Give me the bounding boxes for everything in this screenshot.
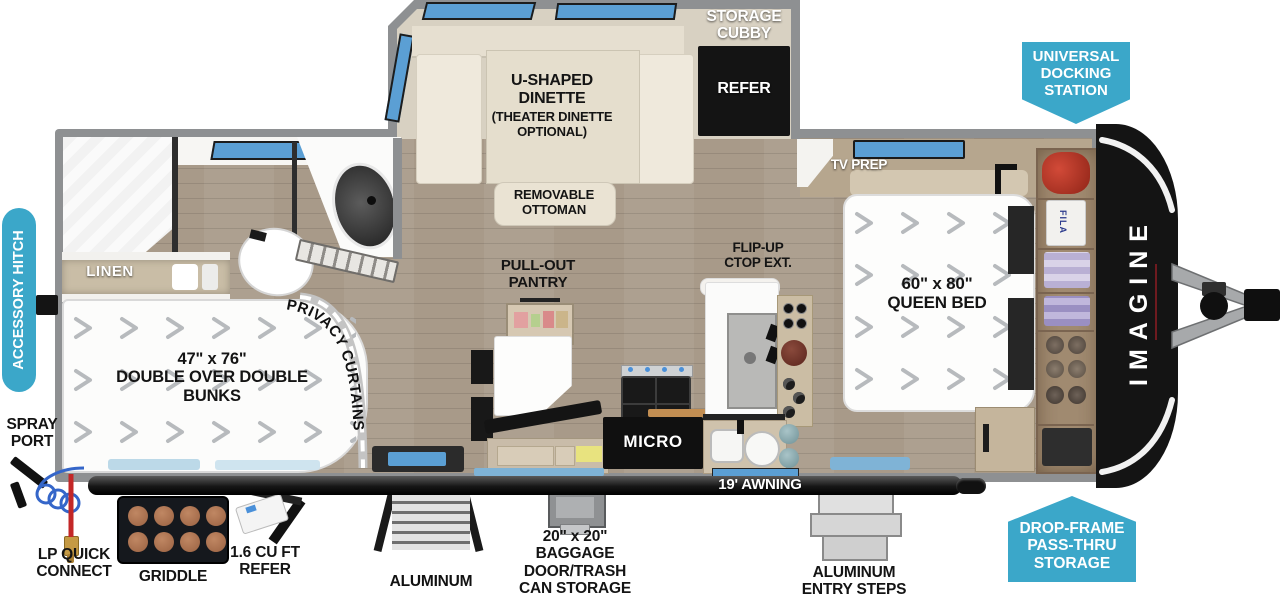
knob-icon	[783, 318, 794, 329]
knob-icon	[783, 303, 794, 314]
canister-icon	[779, 448, 799, 468]
label-micro: MICRO	[603, 432, 703, 451]
badge-accessory-hitch-text: ACCESSORY HITCH	[11, 230, 27, 369]
label-dinette-main: U-SHAPED DINETTE	[490, 72, 614, 108]
label-outside-refer: 1.6 CU FT REFER	[222, 544, 308, 579]
bowl-icon	[781, 340, 807, 366]
baggage-door-inner	[556, 497, 594, 518]
bathroom-wall	[393, 138, 402, 259]
label-queen-bed: 60" x 80" QUEEN BED	[863, 274, 1011, 312]
entry-step-icon	[822, 535, 888, 561]
label-step-entry: ALUMINUM STEP ABOVE 3 STEP ENTRY	[366, 556, 496, 610]
rv-floorplan-diagram: FILA IMAGINE	[0, 0, 1280, 610]
label-baggage-door: 20" x 20" BAGGAGE DOOR/TRASH CAN STORAGE	[518, 528, 632, 597]
pantry-item-icon	[531, 314, 540, 327]
awning-bar	[88, 476, 962, 495]
label-step-entry-line1: ALUMINUM	[366, 573, 496, 590]
cutting-board-icon	[648, 409, 706, 417]
shoes-red-icon	[1042, 152, 1090, 194]
label-awning: 19' AWNING	[710, 477, 810, 494]
towel-icon	[202, 264, 218, 290]
hitch-frame-bar-icon	[1172, 306, 1247, 348]
pantry-item-icon	[514, 312, 528, 328]
range-knob-icon	[679, 367, 684, 372]
patty-icon	[180, 532, 200, 552]
patty-icon	[206, 506, 226, 526]
folded-clothes-icon	[1044, 252, 1090, 288]
brand-imagine: IMAGINE	[1125, 151, 1151, 451]
spray-hose-coil-icon	[61, 494, 79, 512]
round-sink-icon	[744, 431, 780, 467]
wall-cabinet-icon	[471, 350, 493, 384]
shower	[63, 137, 173, 259]
range-knob-icon	[645, 367, 650, 372]
bottle-icon	[783, 378, 795, 390]
shoe-icon	[1068, 360, 1086, 378]
shoe-icon	[1046, 386, 1064, 404]
entry-mat-window	[388, 452, 446, 466]
wardrobe-shelf-line	[1038, 248, 1094, 250]
badge-drop-frame-storage: DROP-FRAME PASS-THRU STORAGE	[1008, 496, 1136, 582]
slideout-window-icon	[422, 2, 536, 20]
tv-mount-bracket-icon	[995, 164, 1017, 170]
storage-bin-icon	[1042, 428, 1092, 466]
shoe-icon	[1068, 386, 1086, 404]
bed-pillow-strip	[850, 170, 1028, 196]
spray-hose-coil-icon	[49, 490, 67, 508]
patty-icon	[154, 506, 174, 526]
label-storage-cubby: STORAGE CUBBY	[696, 8, 792, 43]
label-bunks: 47" x 76" DOUBLE OVER DOUBLE BUNKS	[90, 350, 334, 405]
label-dinette-sub: (THEATER DINETTE OPTIONAL)	[478, 110, 626, 139]
range-knob-icon	[662, 367, 667, 372]
entry-step-icon	[810, 513, 902, 537]
entry-step-icon	[818, 493, 894, 515]
label-refer: REFER	[698, 80, 790, 98]
sink-faucet-icon	[737, 420, 744, 434]
badge-universal-docking-station: UNIVERSAL DOCKING STATION	[1022, 42, 1130, 124]
dresser-handle-icon	[983, 424, 989, 452]
patty-icon	[180, 506, 200, 526]
step-treads-icon	[392, 494, 470, 550]
square-sink-icon	[710, 429, 744, 463]
shoe-icon	[1046, 336, 1064, 354]
canister-icon	[779, 424, 799, 444]
pantry-item-icon	[543, 311, 554, 328]
faucet-icon	[367, 196, 376, 205]
wardrobe-shelf-line	[1038, 330, 1094, 332]
bed-side-panel-icon	[1008, 298, 1034, 390]
counter-inset-dot	[744, 352, 756, 364]
badge-accessory-hitch: ACCESSORY HITCH	[2, 208, 36, 392]
knob-icon	[796, 318, 807, 329]
slideout-window-icon	[555, 3, 677, 20]
pantry-item-icon	[556, 311, 568, 328]
cabinet-drawer-icon	[555, 446, 575, 466]
range-knob-icon	[628, 367, 633, 372]
linen-closet	[62, 252, 230, 260]
accessory-hitch-receiver-icon	[36, 295, 58, 315]
patty-icon	[128, 532, 148, 552]
fila-bag-icon: FILA	[1046, 200, 1086, 246]
shoe-icon	[1068, 336, 1086, 354]
patty-icon	[128, 506, 148, 526]
sprayer-handle-icon	[10, 481, 27, 509]
bunk-rug-icon	[215, 460, 320, 470]
label-linen: LINEN	[75, 264, 145, 281]
pantry-handle	[520, 298, 560, 302]
hitch-jack-mount-icon	[1202, 282, 1226, 296]
dinette-left-seat	[416, 54, 482, 184]
hitch-frame-bar-icon	[1172, 264, 1247, 306]
brand-accent-line	[1155, 264, 1157, 340]
hitch-coupler-icon	[1244, 289, 1280, 321]
bedroom-rug-icon	[830, 457, 910, 470]
label-griddle: GRIDDLE	[124, 568, 222, 585]
fila-bag-label: FILA	[1058, 210, 1068, 234]
label-spray-port: SPRAY PORT	[0, 416, 64, 451]
label-flip-up-ctop: FLIP-UP CTOP EXT.	[720, 240, 796, 270]
label-entry-steps: ALUMINUM ENTRY STEPS	[796, 564, 912, 599]
label-lp-quick-connect: LP QUICK CONNECT	[30, 546, 118, 581]
bottle-icon	[793, 392, 805, 404]
wardrobe-shelf-line	[1038, 424, 1094, 426]
hitch-jack-icon	[1200, 292, 1228, 320]
wardrobe-shelf-line	[1038, 292, 1094, 294]
towel-icon	[172, 264, 198, 290]
note-icon	[576, 446, 602, 462]
knob-icon	[796, 303, 807, 314]
entry-threshold-icon	[474, 468, 604, 476]
bed-side-panel-icon	[1008, 206, 1034, 274]
shoe-icon	[1046, 360, 1064, 378]
folded-clothes-icon	[1044, 296, 1090, 326]
patty-icon	[154, 532, 174, 552]
label-tv-prep: TV PREP	[826, 157, 892, 172]
label-pull-out-pantry: PULL-OUT PANTRY	[490, 258, 586, 292]
spray-hose-coil-icon	[37, 485, 55, 503]
bunk-rug-icon	[108, 459, 200, 470]
label-removable-ottoman: REMOVABLE OTTOMAN	[497, 188, 611, 217]
awning-end-cap-icon	[956, 478, 986, 494]
cabinet-drawer-icon	[497, 446, 554, 466]
